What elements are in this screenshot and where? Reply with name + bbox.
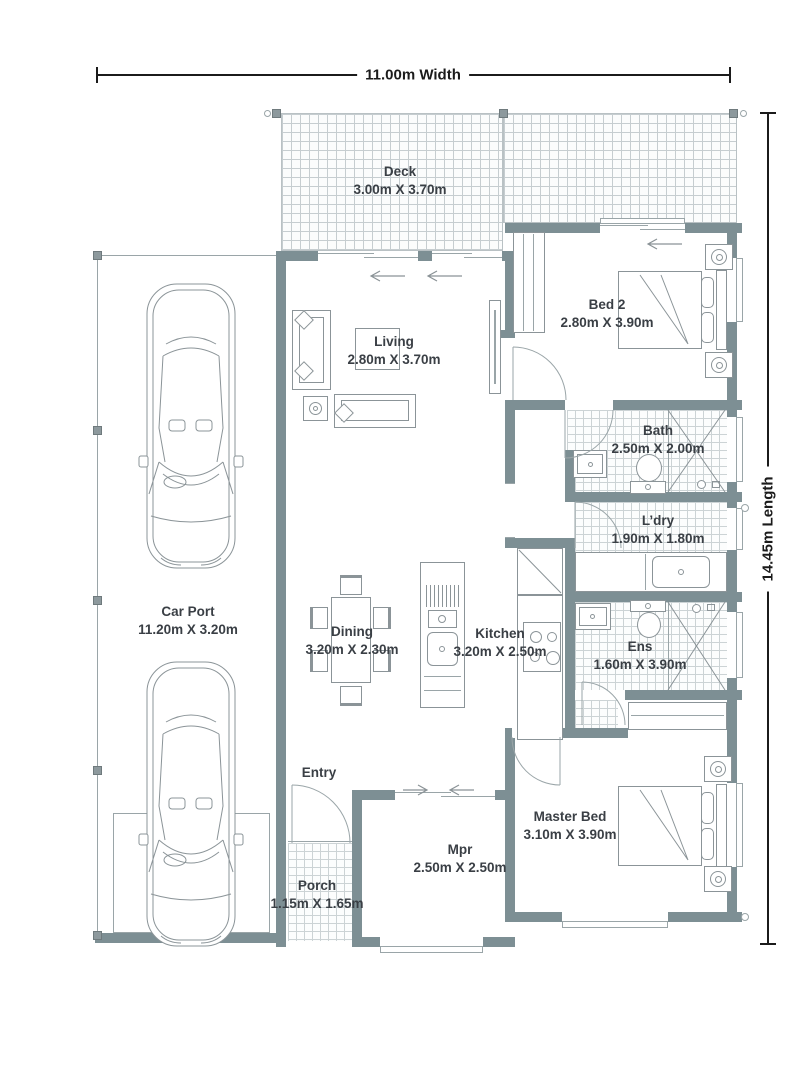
room-name: Deck — [353, 163, 446, 181]
room-label-deck: Deck 3.00m X 3.70m — [353, 163, 446, 199]
room-name: Living — [347, 333, 440, 351]
room-size: 1.60m X 3.90m — [593, 656, 686, 674]
sliding-arrow-left — [648, 239, 682, 249]
car-top-view — [139, 284, 243, 568]
sliding-arrow-left — [450, 785, 474, 795]
room-name: Entry — [302, 764, 337, 782]
length-dimension-label: 14.45m Length — [760, 466, 777, 591]
door-arc-ensuite — [582, 682, 625, 725]
room-name: Bath — [611, 422, 704, 440]
room-name: Bed 2 — [560, 296, 653, 314]
room-label-master: Master Bed 3.10m X 3.90m — [523, 808, 616, 844]
pantry-diagonal — [519, 550, 561, 593]
width-dimension-label: 11.00m Width — [357, 67, 469, 84]
room-size: 2.80m X 3.90m — [560, 314, 653, 332]
sliding-arrow-right — [403, 785, 427, 795]
sliding-arrow-left — [371, 271, 405, 281]
room-name: Master Bed — [523, 808, 616, 826]
room-label-living: Living 2.80m X 3.70m — [347, 333, 440, 369]
room-label-kitchen: Kitchen 3.20m X 2.50m — [453, 625, 546, 661]
door-arc-master — [512, 737, 560, 785]
room-name: Mpr — [413, 841, 506, 859]
room-size: 1.90m X 1.80m — [611, 530, 704, 548]
room-size: 3.10m X 3.90m — [523, 826, 616, 844]
room-label-dining: Dining 3.20m X 2.30m — [305, 623, 398, 659]
door-arc-bed2 — [513, 347, 566, 400]
room-name: Dining — [305, 623, 398, 641]
room-label-carport: Car Port 11.20m X 3.20m — [138, 603, 238, 639]
sliding-arrow-left — [428, 271, 462, 281]
room-size: 1.15m X 1.65m — [270, 895, 363, 913]
room-name: Kitchen — [453, 625, 546, 643]
room-size: 2.50m X 2.00m — [611, 440, 704, 458]
room-name: Ens — [593, 638, 686, 656]
room-label-porch: Porch 1.15m X 1.65m — [270, 877, 363, 913]
room-size: 2.50m X 2.50m — [413, 859, 506, 877]
door-arc-bath — [565, 410, 613, 458]
room-label-entry: Entry — [302, 764, 337, 782]
room-label-ldry: L’dry 1.90m X 1.80m — [611, 512, 704, 548]
room-size: 3.00m X 3.70m — [353, 181, 446, 199]
room-size: 2.80m X 3.70m — [347, 351, 440, 369]
room-label-mpr: Mpr 2.50m X 2.50m — [413, 841, 506, 877]
room-name: L’dry — [611, 512, 704, 530]
car-top-view — [139, 662, 243, 946]
bed-blanket-fold — [640, 790, 688, 860]
door-arc-entry — [292, 785, 350, 843]
room-name: Porch — [270, 877, 363, 895]
room-size: 3.20m X 2.30m — [305, 641, 398, 659]
floor-plan-canvas: 11.00m Width 14.45m Length — [0, 0, 800, 1066]
room-name: Car Port — [138, 603, 238, 621]
room-label-bed2: Bed 2 2.80m X 3.90m — [560, 296, 653, 332]
room-size: 3.20m X 2.50m — [453, 643, 546, 661]
room-label-ens: Ens 1.60m X 3.90m — [593, 638, 686, 674]
room-size: 11.20m X 3.20m — [138, 621, 238, 639]
room-label-bath: Bath 2.50m X 2.00m — [611, 422, 704, 458]
